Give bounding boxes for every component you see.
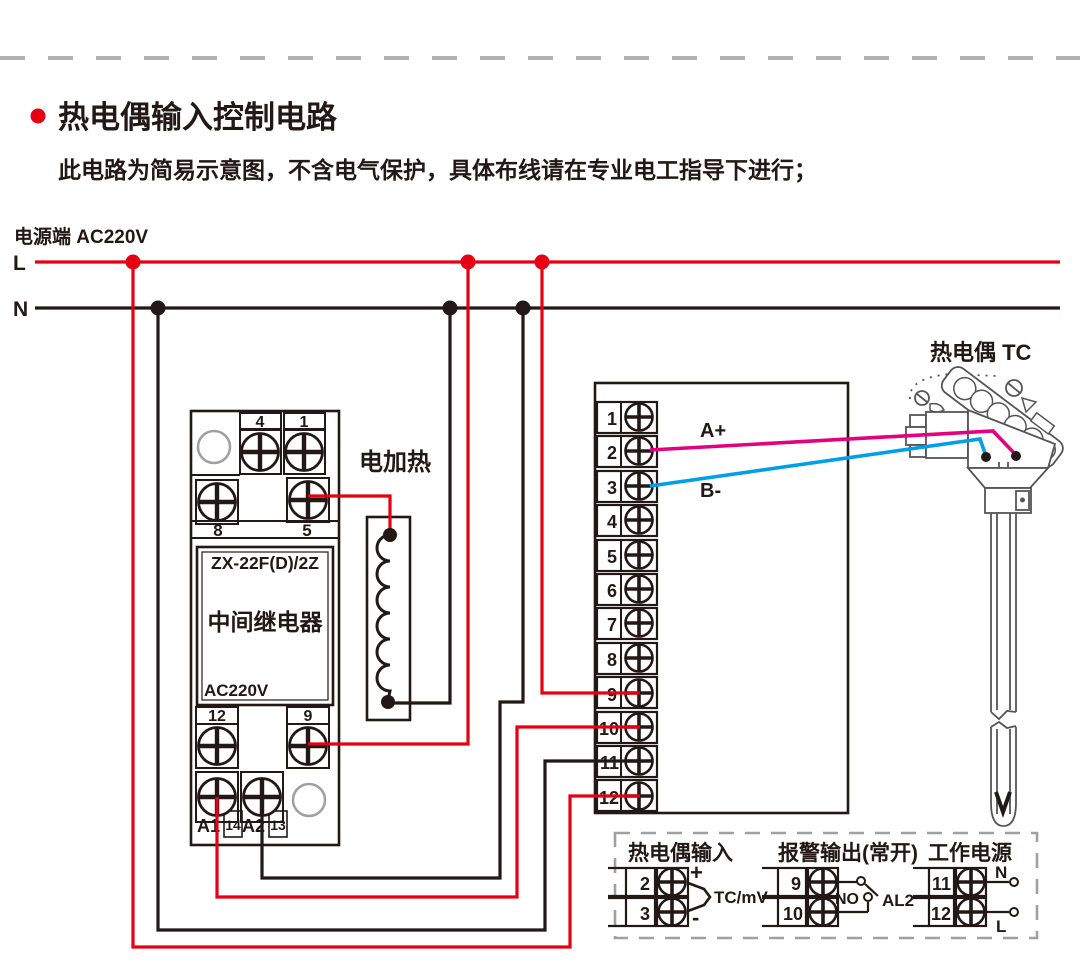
- wire-b-minus-label: B-: [700, 480, 721, 502]
- controller-terminal-11: 11: [600, 753, 619, 773]
- controller-terminal-1: 1: [607, 409, 617, 429]
- controller-terminal-9: 9: [607, 685, 617, 705]
- relay-screw-4: [242, 434, 279, 471]
- legend-box: 热电偶输入 2 3 + - TC/mV 报警输出(常开): [608, 833, 1037, 938]
- line-l-label: L: [13, 252, 26, 275]
- controller-terminal-8: 8: [607, 650, 617, 670]
- heater-label: 电加热: [359, 449, 431, 476]
- probe-tip-mark: [996, 792, 1010, 812]
- legend-power-t12: 12: [931, 904, 951, 924]
- relay-terminal-13-label: 13: [270, 817, 286, 833]
- legend-screw-3: [659, 899, 686, 926]
- controller-screw-4: [626, 507, 653, 534]
- power-source-label: 电源端 AC220V: [14, 225, 148, 248]
- relay-mount-hole-bottom: [293, 784, 325, 816]
- controller-terminal-4: 4: [607, 512, 617, 532]
- controller-screw-3: [626, 473, 653, 500]
- legend-power-title: 工作电源: [928, 841, 1012, 865]
- controller-terminal-3: 3: [607, 478, 617, 498]
- title-bullet-icon: [31, 109, 46, 124]
- relay-terminal-12-label: 12: [208, 708, 226, 725]
- relay-name-label: 中间继电器: [208, 609, 324, 635]
- line-n-label: N: [13, 298, 28, 321]
- relay-terminal-8-label: 8: [213, 521, 222, 540]
- legend-alarm-al2: AL2: [882, 891, 914, 910]
- controller-terminal-2: 2: [607, 443, 617, 463]
- controller-screw-2: [626, 438, 653, 465]
- neutral-wires: [35, 308, 1060, 930]
- legend-screw-12: [958, 899, 985, 926]
- legend-screw-10: [810, 899, 837, 926]
- legend-input-plus: +: [690, 860, 703, 885]
- controller-terminal-10: 10: [599, 719, 619, 739]
- legend-input-t2: 2: [640, 874, 650, 894]
- relay-screw-12: [199, 728, 236, 765]
- relay-screw-5: [290, 482, 327, 519]
- legend-screw-9: [810, 869, 837, 896]
- controller-terminal-6: 6: [607, 581, 617, 601]
- legend-input-signal: TC/mV: [714, 888, 769, 907]
- controller-terminal-7: 7: [607, 615, 617, 635]
- legend-alarm-t9: 9: [791, 874, 801, 894]
- relay-model-label: ZX-22F(D)/2Z: [211, 553, 319, 573]
- relay-terminal-14-label: 14: [225, 817, 241, 833]
- legend-power-t11: 11: [932, 874, 951, 894]
- controller-screw-6: [626, 576, 653, 603]
- controller-terminal-5: 5: [607, 547, 617, 567]
- circuit-diagram-svg: 热电偶输入控制电路 此电路为简易示意图，不含电气保护，具体布线请在专业电工指导下…: [0, 0, 1080, 975]
- legend-power-n: N: [995, 863, 1007, 882]
- controller-screw-7: [626, 610, 653, 637]
- relay-terminal-5-label: 5: [302, 521, 311, 540]
- page-title: 热电偶输入控制电路: [58, 100, 338, 135]
- legend-power-l: L: [996, 917, 1006, 936]
- relay-terminal-9-label: 9: [304, 708, 313, 725]
- relay-voltage-label: AC220V: [204, 681, 269, 700]
- legend-screw-2: [659, 869, 686, 896]
- relay-screw-1: [286, 434, 323, 471]
- relay-mount-hole-top: [198, 431, 230, 463]
- legend-input-t3: 3: [640, 904, 650, 924]
- legend-input-minus: -: [692, 905, 699, 930]
- controller-screw-5: [626, 542, 653, 569]
- relay-screw-8: [199, 484, 236, 521]
- legend-alarm-title: 报警输出(常开): [778, 841, 918, 865]
- wire-a-plus-label: A+: [700, 420, 726, 442]
- legend-alarm-t10: 10: [783, 904, 803, 924]
- controller-terminal-12: 12: [599, 788, 619, 808]
- wiring-diagram-page: { "page": { "title": "热电偶输入控制电路", "subti…: [0, 0, 1080, 975]
- relay-terminal-4-label: 4: [256, 414, 265, 431]
- heater-component: [367, 517, 410, 720]
- controller-screw-8: [626, 645, 653, 672]
- legend-input-title: 热电偶输入: [628, 841, 733, 865]
- legend-alarm-no: NO: [835, 891, 859, 908]
- relay-terminal-1-label: 1: [300, 414, 309, 431]
- page-subtitle: 此电路为简易示意图，不含电气保护，具体布线请在专业电工指导下进行；: [58, 157, 817, 183]
- thermocouple-component: [906, 356, 1072, 826]
- relay-screw-9: [290, 728, 327, 765]
- legend-screw-11: [958, 869, 985, 896]
- controller-screw-1: [626, 404, 653, 431]
- thermocouple-label: 热电偶 TC: [930, 340, 1032, 365]
